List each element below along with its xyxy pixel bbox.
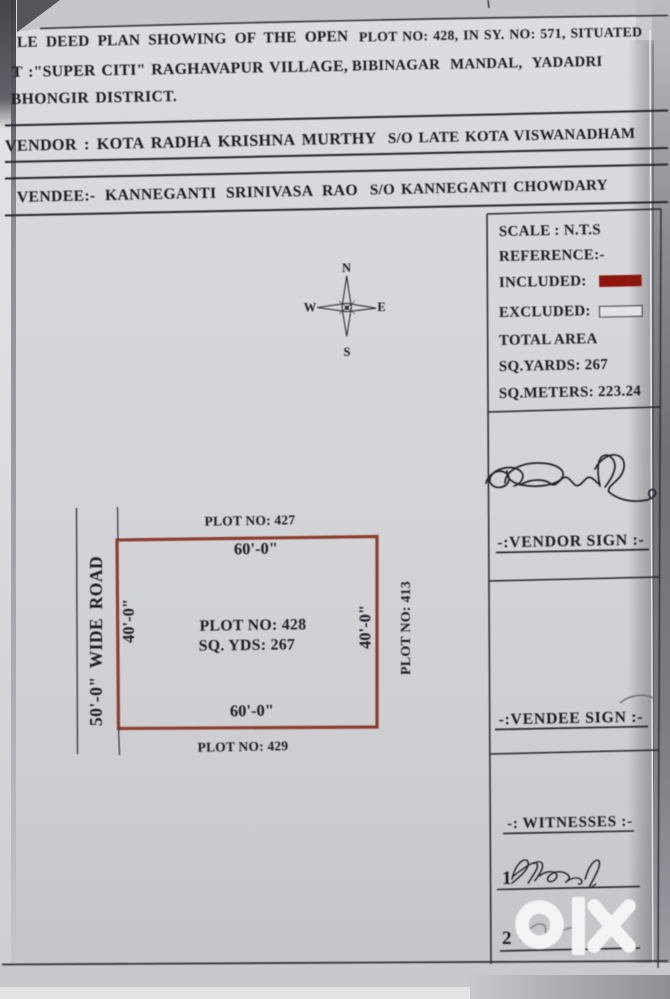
svg-text:PLOT NO: 429: PLOT NO: 429: [197, 738, 288, 755]
svg-text:1: 1: [502, 868, 512, 889]
svg-text:40'-0": 40'-0": [119, 599, 138, 643]
svg-text:REFERENCE:-: REFERENCE:-: [499, 247, 605, 265]
svg-text:PLOT NO: 428: PLOT NO: 428: [199, 616, 306, 634]
svg-text:-: WITNESSES :-: -: WITNESSES :-: [507, 813, 633, 832]
svg-text:-:VENDEE SIGN :-: -:VENDEE SIGN :-: [498, 709, 643, 729]
svg-text:SQ.YARDS: 267: SQ.YARDS: 267: [499, 357, 609, 375]
svg-text:2: 2: [502, 928, 512, 949]
svg-text:BHONGIR DISTRICT.: BHONGIR DISTRICT.: [11, 88, 178, 108]
svg-text:-:VENDOR SIGN :-: -:VENDOR SIGN :-: [497, 532, 645, 552]
svg-text:60'-0": 60'-0": [230, 701, 274, 721]
svg-text:PLOT NO: 413: PLOT NO: 413: [399, 581, 414, 675]
svg-text:SQ.METERS: 223.24: SQ.METERS: 223.24: [499, 383, 642, 402]
svg-text:PLOT NO: 427: PLOT NO: 427: [204, 512, 295, 529]
svg-text:SQ. YDS: 267: SQ. YDS: 267: [199, 636, 296, 654]
svg-text:S: S: [344, 345, 351, 359]
svg-text:E: E: [377, 300, 385, 314]
svg-text:TOTAL AREA: TOTAL AREA: [499, 331, 598, 349]
svg-text:EXCLUDED:: EXCLUDED:: [499, 303, 591, 321]
svg-text:60'-0": 60'-0": [234, 539, 278, 559]
svg-text:50'-0" WIDE ROAD: 50'-0" WIDE ROAD: [86, 556, 106, 726]
svg-text:N: N: [342, 261, 351, 275]
svg-text:40'-0": 40'-0": [356, 605, 375, 649]
svg-text:INCLUDED:: INCLUDED:: [499, 273, 587, 291]
svg-text:INDIA: INDIA: [594, 952, 625, 960]
svg-text:W: W: [304, 301, 317, 315]
svg-text:SCALE : N.T.S: SCALE : N.T.S: [499, 222, 601, 240]
